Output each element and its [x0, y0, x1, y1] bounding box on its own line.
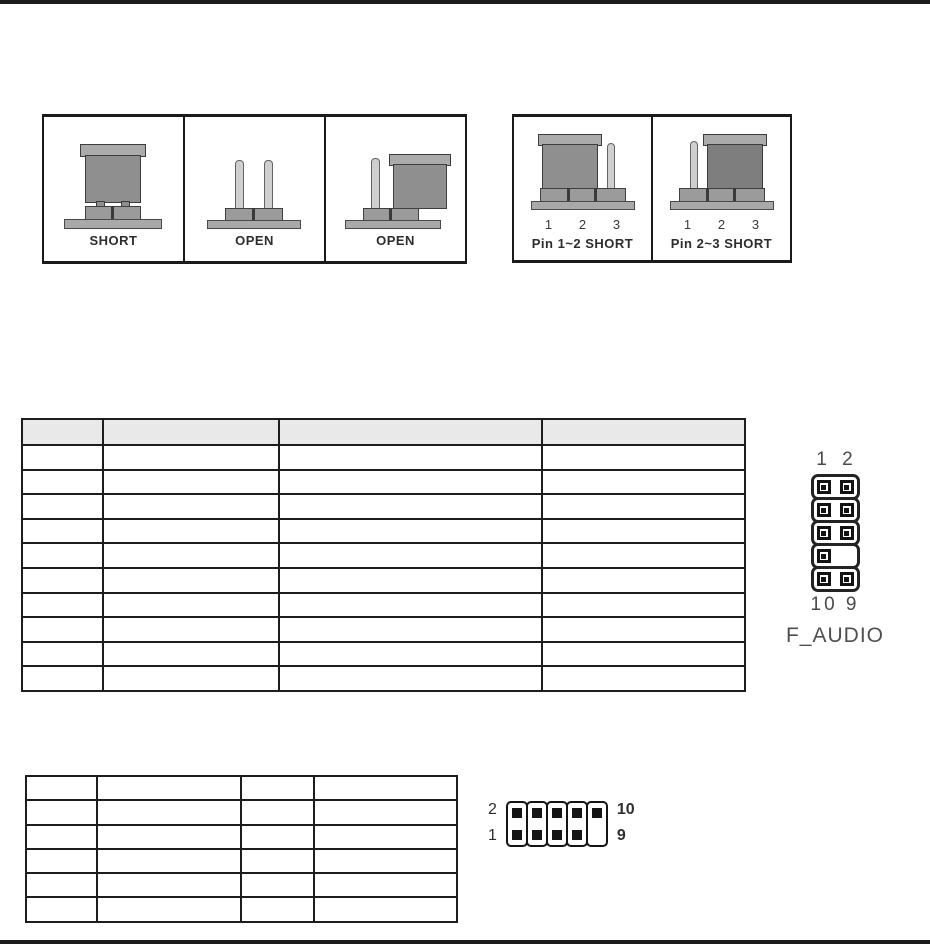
pin-icon: [552, 830, 562, 840]
table-cell: [97, 849, 241, 873]
jumper-state-label: Pin 2~3 SHORT: [653, 236, 790, 251]
table-cell: [241, 800, 314, 824]
table-row: [22, 617, 745, 642]
table-cell: [97, 873, 241, 897]
table-cell: [103, 568, 279, 593]
table-cell: [542, 666, 745, 691]
table-cell: [26, 849, 97, 873]
jumper-cap-icon: [707, 144, 763, 189]
pin-base-icon: [540, 188, 626, 202]
jumper-state-label: OPEN: [185, 233, 324, 248]
front-audio-pin-table: [21, 418, 746, 692]
pin-column: [566, 801, 588, 847]
bare-pin-icon: [264, 160, 273, 210]
table-cell: [279, 568, 542, 593]
table-row: [26, 897, 457, 921]
bare-pin-icon: [371, 158, 380, 210]
pin-icon: [817, 572, 831, 586]
pin-column-keyed: [586, 801, 608, 847]
table-cell: [26, 800, 97, 824]
pin-icon: [840, 480, 854, 494]
jumper-pin23-diagram: [662, 125, 782, 210]
table-cell: [542, 568, 745, 593]
table-row: [22, 568, 745, 593]
jumper-panel-pin12-short: 1 2 3 Pin 1~2 SHORT: [514, 117, 651, 260]
pin-icon: [592, 808, 602, 818]
table-cell: [22, 470, 103, 495]
pin-number: 1: [542, 217, 556, 232]
bare-pin-icon: [690, 141, 698, 189]
bare-pin-icon: [235, 160, 244, 210]
table-cell: [22, 494, 103, 519]
table-cell: [26, 897, 97, 921]
pin-icon: [512, 830, 522, 840]
table-cell: [279, 666, 542, 691]
table-cell: [103, 543, 279, 568]
table-row: [22, 519, 745, 544]
table-cell: [22, 519, 103, 544]
pin-icon: [817, 480, 831, 494]
table-header-cell: [542, 419, 745, 445]
table-header-cell: [103, 419, 279, 445]
table-row: [26, 873, 457, 897]
table-cell: [26, 776, 97, 800]
jumper-state-label: Pin 1~2 SHORT: [514, 236, 651, 251]
pin-base-icon: [679, 188, 765, 202]
table-cell: [542, 543, 745, 568]
pin-column: [526, 801, 548, 847]
board-plate-icon: [207, 220, 301, 229]
table-cell: [103, 445, 279, 470]
pin-icon: [532, 808, 542, 818]
table-cell: [22, 543, 103, 568]
pin-column: [506, 801, 528, 847]
table-cell: [314, 800, 457, 824]
jumper-panel-open-cap-aside: OPEN: [324, 117, 465, 261]
pin-icon: [840, 572, 854, 586]
table-cell: [279, 593, 542, 618]
table-cell: [542, 593, 745, 618]
pin-right-numbers: 10 9: [617, 801, 635, 847]
table-cell: [279, 519, 542, 544]
horizontal-header-icon: [506, 801, 608, 847]
pin-icon: [817, 549, 831, 563]
pin-number-row: 1 2 3: [514, 217, 651, 232]
second-pin-table: [25, 775, 458, 923]
pin-icon: [572, 830, 582, 840]
table-cell: [241, 849, 314, 873]
table-row: [22, 494, 745, 519]
table-cell: [22, 617, 103, 642]
table-cell: [279, 470, 542, 495]
pin-icon: [512, 808, 522, 818]
table-cell: [97, 800, 241, 824]
pin-icon: [840, 503, 854, 517]
jumper-legend-two-pin: SHORT OPEN OPEN: [42, 114, 467, 264]
table-row: [22, 445, 745, 470]
table-cell: [241, 897, 314, 921]
f-audio-connector-diagram: 1 2 10 9 F_AUDIO: [770, 449, 900, 648]
table-cell: [103, 494, 279, 519]
jumper-panel-short: SHORT: [44, 117, 183, 261]
table-cell: [22, 642, 103, 667]
table-cell: [314, 897, 457, 921]
pin-icon: [532, 830, 542, 840]
pin-number: 3: [749, 217, 763, 232]
table-header-cell: [279, 419, 542, 445]
table-cell: [97, 776, 241, 800]
pin-row: [811, 566, 860, 592]
pin-icon: [817, 526, 831, 540]
table-cell: [542, 642, 745, 667]
pin-icon: [552, 808, 562, 818]
table-row: [22, 642, 745, 667]
table-cell: [314, 825, 457, 849]
pin-base-icon: [85, 206, 141, 220]
pin-icon: [840, 526, 854, 540]
pin-left-numbers: 2 1: [488, 801, 497, 847]
table-cell: [22, 568, 103, 593]
table-header-cell: [22, 419, 103, 445]
table-cell: [314, 873, 457, 897]
table-cell: [279, 617, 542, 642]
pin-number: 2: [488, 801, 497, 819]
pin-column: [546, 801, 568, 847]
table-cell: [542, 470, 745, 495]
jumper-state-label: SHORT: [44, 233, 183, 248]
page-bottom-rule: [0, 940, 930, 944]
table-cell: [279, 543, 542, 568]
table-cell: [103, 617, 279, 642]
jumper-panel-pin23-short: 1 2 3 Pin 2~3 SHORT: [651, 117, 790, 260]
table-cell: [22, 593, 103, 618]
table-cell: [103, 593, 279, 618]
table-cell: [97, 825, 241, 849]
pin-number: 10: [617, 801, 635, 819]
board-plate-icon: [531, 201, 635, 210]
jumper-open-cap-aside-diagram: [341, 134, 451, 229]
jumper-pin12-diagram: [523, 125, 643, 210]
board-plate-icon: [345, 220, 441, 229]
table-cell: [314, 776, 457, 800]
table-cell: [279, 642, 542, 667]
table-cell: [279, 445, 542, 470]
pin-bottom-numbers-label: 10 9: [811, 594, 860, 616]
table-cell: [542, 617, 745, 642]
table-cell: [103, 666, 279, 691]
board-plate-icon: [670, 201, 774, 210]
table-cell: [22, 445, 103, 470]
pin-icon: [817, 503, 831, 517]
jumper-cap-icon: [542, 144, 598, 189]
jumper-state-label: OPEN: [326, 233, 465, 248]
table-row: [26, 776, 457, 800]
table-header-row: [22, 419, 745, 445]
table-cell: [542, 445, 745, 470]
jumper-open-diagram: [200, 134, 310, 229]
table-cell: [103, 470, 279, 495]
pin-number-row: 1 2 3: [653, 217, 790, 232]
pin-top-numbers-label: 1 2: [812, 449, 857, 471]
table-row: [26, 849, 457, 873]
board-plate-icon: [64, 219, 162, 229]
table-cell: [103, 642, 279, 667]
pin-number: 1: [488, 827, 497, 845]
connector-name-label: F_AUDIO: [786, 624, 884, 648]
jumper-legend-three-pin: 1 2 3 Pin 1~2 SHORT 1 2 3 Pin 2~3 SHORT: [512, 114, 792, 263]
table-cell: [279, 494, 542, 519]
pin-icon: [572, 808, 582, 818]
pin-number: 2: [576, 217, 590, 232]
table-row: [22, 593, 745, 618]
pin-number: 1: [681, 217, 695, 232]
jumper-cap-icon: [393, 164, 447, 209]
table-cell: [241, 825, 314, 849]
table-row: [26, 800, 457, 824]
table-row: [22, 543, 745, 568]
bare-pin-icon: [607, 143, 615, 189]
pin-number: 9: [617, 827, 635, 845]
f-audio-header-icon: [811, 474, 860, 592]
table-cell: [103, 519, 279, 544]
table-row: [26, 825, 457, 849]
table-row: [22, 666, 745, 691]
jumper-panel-open: OPEN: [183, 117, 324, 261]
table-row: [22, 470, 745, 495]
table-cell: [542, 494, 745, 519]
table-cell: [26, 873, 97, 897]
table-cell: [97, 897, 241, 921]
table-cell: [26, 825, 97, 849]
horizontal-connector-diagram: 2 1 10 9: [488, 801, 635, 847]
table-cell: [241, 873, 314, 897]
table-cell: [314, 849, 457, 873]
table-cell: [542, 519, 745, 544]
jumper-short-diagram: [59, 134, 169, 229]
page-top-rule: [0, 0, 930, 4]
table-cell: [241, 776, 314, 800]
pin-number: 3: [610, 217, 624, 232]
pin-number: 2: [715, 217, 729, 232]
table-cell: [22, 666, 103, 691]
jumper-cap-icon: [85, 155, 141, 203]
